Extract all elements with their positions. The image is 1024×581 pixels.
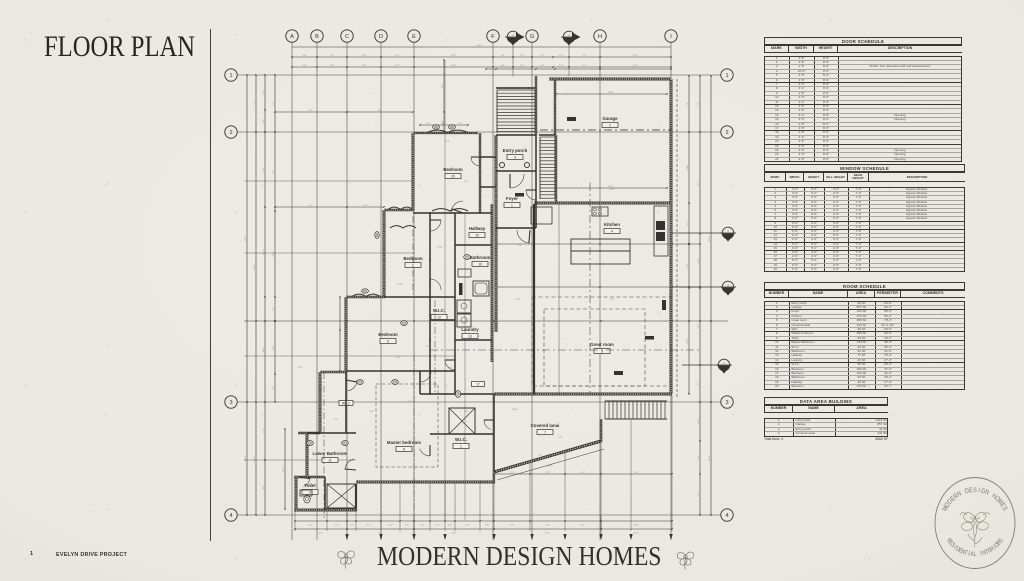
svg-text:1'-2": 1'-2" [448, 525, 452, 527]
svg-text:1'-8": 1'-8" [485, 525, 489, 527]
svg-text:D: D [379, 34, 383, 40]
svg-text:5'-1": 5'-1" [698, 492, 700, 496]
svg-text:16'-2": 16'-2" [633, 65, 639, 67]
svg-text:3'-4": 3'-4" [464, 411, 468, 413]
svg-text:6'-6": 6'-6" [319, 533, 323, 535]
svg-text:5'-0": 5'-0" [510, 472, 514, 474]
svg-text:17'-8": 17'-8" [444, 141, 450, 143]
svg-text:8'-10": 8'-10" [634, 525, 640, 527]
svg-text:6'-0": 6'-0" [442, 123, 446, 125]
svg-text:94'-6": 94'-6" [477, 45, 483, 47]
svg-text:13'-6": 13'-6" [451, 55, 457, 57]
svg-text:4: 4 [725, 513, 728, 519]
svg-text:10'-0": 10'-0" [451, 533, 457, 535]
svg-text:12'-7": 12'-7" [698, 180, 700, 186]
svg-text:13'-1": 13'-1" [263, 347, 265, 353]
svg-text:16'-7": 16'-7" [608, 186, 614, 188]
svg-text:5'-2": 5'-2" [582, 55, 586, 57]
svg-text:3'-3": 3'-3" [520, 55, 524, 57]
svg-text:3'-3": 3'-3" [520, 65, 524, 67]
svg-text:10'-6": 10'-6" [273, 251, 275, 257]
svg-text:1'-9": 1'-9" [405, 525, 409, 527]
svg-text:5'-8": 5'-8" [362, 55, 366, 57]
svg-text:6'-8": 6'-8" [370, 411, 374, 413]
svg-text:4'-6": 4'-6" [302, 55, 306, 57]
svg-text:3'-8": 3'-8" [501, 65, 505, 67]
svg-text:3'-1": 3'-1" [366, 525, 370, 527]
svg-text:S: S [973, 486, 977, 494]
svg-text:Great room: Great room [590, 342, 614, 347]
svg-text:7: 7 [544, 431, 546, 435]
svg-text:2: 2 [725, 130, 728, 136]
svg-text:Toilet: Toilet [304, 483, 316, 488]
svg-text:40'-5": 40'-5" [709, 236, 711, 242]
svg-text:Hallway: Hallway [469, 226, 486, 231]
svg-text:Laundry: Laundry [461, 327, 479, 332]
svg-text:14'-0": 14'-0" [245, 456, 247, 462]
svg-text:7'-2": 7'-2" [687, 102, 689, 106]
svg-text:4'-7": 4'-7" [698, 381, 700, 385]
svg-text:3: 3 [725, 400, 728, 406]
svg-text:12: 12 [437, 316, 441, 320]
svg-text:41'-2": 41'-2" [245, 236, 247, 242]
svg-text:Garage: Garage [602, 116, 618, 121]
svg-text:Bedroom: Bedroom [443, 167, 462, 172]
svg-text:1: 1 [229, 73, 232, 79]
svg-text:9: 9 [309, 491, 311, 495]
svg-text:6'-8": 6'-8" [698, 259, 700, 263]
svg-text:13'-2": 13'-2" [687, 338, 689, 344]
svg-text:7'-2": 7'-2" [698, 102, 700, 106]
svg-text:Entry porch: Entry porch [503, 148, 528, 153]
svg-text:5'-6": 5'-6" [395, 55, 399, 57]
svg-text:9'-3": 9'-3" [516, 299, 520, 301]
svg-text:4'-1": 4'-1" [408, 401, 412, 403]
svg-text:B: B [315, 34, 319, 40]
svg-text:Bedroom: Bedroom [378, 332, 397, 337]
svg-text:4'-5": 4'-5" [581, 525, 585, 527]
svg-text:2'-9": 2'-9" [559, 55, 563, 57]
svg-text:1'-6": 1'-6" [396, 357, 400, 359]
svg-text:C: C [345, 34, 349, 40]
svg-text:17: 17 [476, 382, 480, 386]
svg-text:4'-6": 4'-6" [302, 65, 306, 67]
svg-text:8'-10": 8'-10" [687, 165, 689, 171]
svg-text:11: 11 [328, 459, 332, 463]
svg-text:4'-10": 4'-10" [698, 419, 700, 425]
svg-text:10'-2": 10'-2" [657, 419, 663, 421]
svg-text:4'-3": 4'-3" [363, 205, 367, 207]
svg-text:24'-1": 24'-1" [548, 465, 554, 468]
svg-text:20: 20 [451, 175, 455, 179]
svg-text:Covered lanai: Covered lanai [531, 423, 560, 428]
svg-text:8: 8 [403, 448, 405, 452]
svg-text:3'-1": 3'-1" [465, 525, 469, 527]
svg-text:16'-2": 16'-2" [633, 55, 639, 57]
svg-text:Kitchen: Kitchen [604, 222, 620, 227]
svg-text:9'-2": 9'-2" [309, 205, 313, 207]
svg-text:34'-0": 34'-0" [254, 264, 256, 270]
svg-text:9'-9": 9'-9" [273, 169, 275, 173]
svg-text:2'-0": 2'-0" [458, 123, 462, 125]
svg-text:5'-2": 5'-2" [464, 181, 468, 183]
svg-text:4: 4 [611, 230, 613, 234]
svg-text:5'-8": 5'-8" [362, 65, 366, 67]
svg-text:2'-4": 2'-4" [388, 525, 392, 527]
svg-text:Master bedroom: Master bedroom [387, 440, 421, 445]
svg-text:13'-6": 13'-6" [451, 65, 457, 67]
svg-text:W.I.C.: W.I.C. [455, 437, 467, 442]
svg-text:6'-6": 6'-6" [273, 345, 275, 349]
svg-text:8'-5": 8'-5" [378, 110, 382, 112]
svg-text:9'-5": 9'-5" [263, 167, 265, 171]
svg-text:3'-0": 3'-0" [334, 419, 338, 421]
svg-text:4'-2": 4'-2" [263, 90, 265, 94]
svg-text:4'-1": 4'-1" [698, 455, 700, 459]
svg-text:3'-1": 3'-1" [518, 245, 522, 247]
svg-text:Foyer: Foyer [506, 196, 518, 201]
svg-text:3: 3 [514, 156, 516, 160]
svg-text:H: H [598, 34, 602, 40]
svg-text:2'-0": 2'-0" [426, 123, 430, 125]
svg-text:7'-8": 7'-8" [538, 455, 542, 457]
svg-text:1'-2": 1'-2" [349, 525, 353, 527]
svg-text:4'-0": 4'-0" [309, 525, 313, 527]
svg-text:L: L [974, 552, 977, 559]
svg-text:4'-4": 4'-4" [545, 525, 549, 527]
svg-text:6: 6 [387, 340, 389, 344]
svg-text:7'-6": 7'-6" [558, 437, 562, 439]
svg-text:13: 13 [468, 335, 472, 339]
svg-text:4'-5": 4'-5" [510, 525, 514, 527]
svg-text:Bathroom: Bathroom [470, 255, 491, 260]
svg-text:1: 1 [511, 204, 513, 208]
svg-text:3'-8": 3'-8" [501, 55, 505, 57]
svg-text:6'-1": 6'-1" [330, 65, 334, 67]
svg-text:5'-6": 5'-6" [395, 65, 399, 67]
svg-text:11'-2": 11'-2" [263, 249, 265, 254]
svg-text:11'-8": 11'-8" [437, 247, 442, 249]
svg-text:3'-7": 3'-7" [540, 65, 544, 67]
svg-text:4'-6": 4'-6" [298, 367, 302, 369]
svg-text:10: 10 [478, 263, 482, 267]
svg-text:7'-3": 7'-3" [263, 429, 265, 433]
svg-text:4'-9": 4'-9" [545, 472, 549, 474]
svg-text:2: 2 [229, 130, 232, 136]
svg-text:1: 1 [725, 73, 728, 79]
svg-text:3: 3 [229, 400, 232, 406]
svg-text:16'-7": 16'-7" [609, 299, 615, 301]
svg-text:2'-9": 2'-9" [559, 65, 563, 67]
svg-text:2'-6": 2'-6" [335, 525, 339, 527]
svg-text:6'-1": 6'-1" [330, 55, 334, 57]
svg-text:2'-0": 2'-0" [420, 525, 424, 527]
svg-text:11'-1": 11'-1" [283, 466, 285, 471]
svg-text:15: 15 [475, 234, 479, 238]
svg-text:2'-9": 2'-9" [273, 307, 275, 311]
svg-text:6'-8": 6'-8" [263, 485, 265, 489]
svg-text:13'-5": 13'-5" [545, 533, 551, 535]
svg-text:5'-1": 5'-1" [687, 221, 689, 225]
svg-text:14'-0": 14'-0" [709, 456, 711, 462]
svg-text:4: 4 [229, 513, 232, 519]
svg-text:9'-9": 9'-9" [634, 472, 638, 474]
svg-text:9'-6": 9'-6" [698, 324, 700, 328]
svg-text:6'-2": 6'-2" [442, 84, 444, 88]
svg-text:1'-9": 1'-9" [435, 525, 439, 527]
svg-text:1: 1 [460, 445, 462, 449]
svg-text:4'-5": 4'-5" [426, 346, 430, 348]
svg-text:5'-2": 5'-2" [582, 65, 586, 67]
svg-text:7'-2": 7'-2" [273, 101, 275, 105]
svg-text:E: E [412, 34, 416, 40]
svg-text:18'-8": 18'-8" [608, 92, 614, 94]
svg-text:2'-8": 2'-8" [448, 367, 452, 369]
svg-text:5'-5": 5'-5" [687, 264, 689, 268]
svg-text:F: F [491, 34, 495, 40]
svg-text:11'-10": 11'-10" [397, 284, 404, 286]
svg-text:7'-2": 7'-2" [254, 101, 256, 105]
svg-text:G: G [530, 34, 534, 40]
svg-text:2'-8": 2'-8" [263, 119, 265, 123]
svg-text:Lower Bathroom: Lower Bathroom [313, 451, 348, 456]
svg-text:3'-4": 3'-4" [273, 386, 275, 390]
svg-text:8'-10": 8'-10" [634, 533, 640, 535]
svg-text:3'-7": 3'-7" [540, 55, 544, 57]
svg-text:16'-7": 16'-7" [609, 189, 615, 191]
svg-text:5'-0": 5'-0" [581, 472, 585, 474]
svg-text:36'-4": 36'-4" [512, 409, 518, 411]
svg-text:2: 2 [609, 124, 611, 128]
svg-text:9'-2": 9'-2" [309, 110, 313, 112]
svg-text:A: A [290, 34, 294, 40]
svg-text:11'-1": 11'-1" [254, 456, 256, 461]
